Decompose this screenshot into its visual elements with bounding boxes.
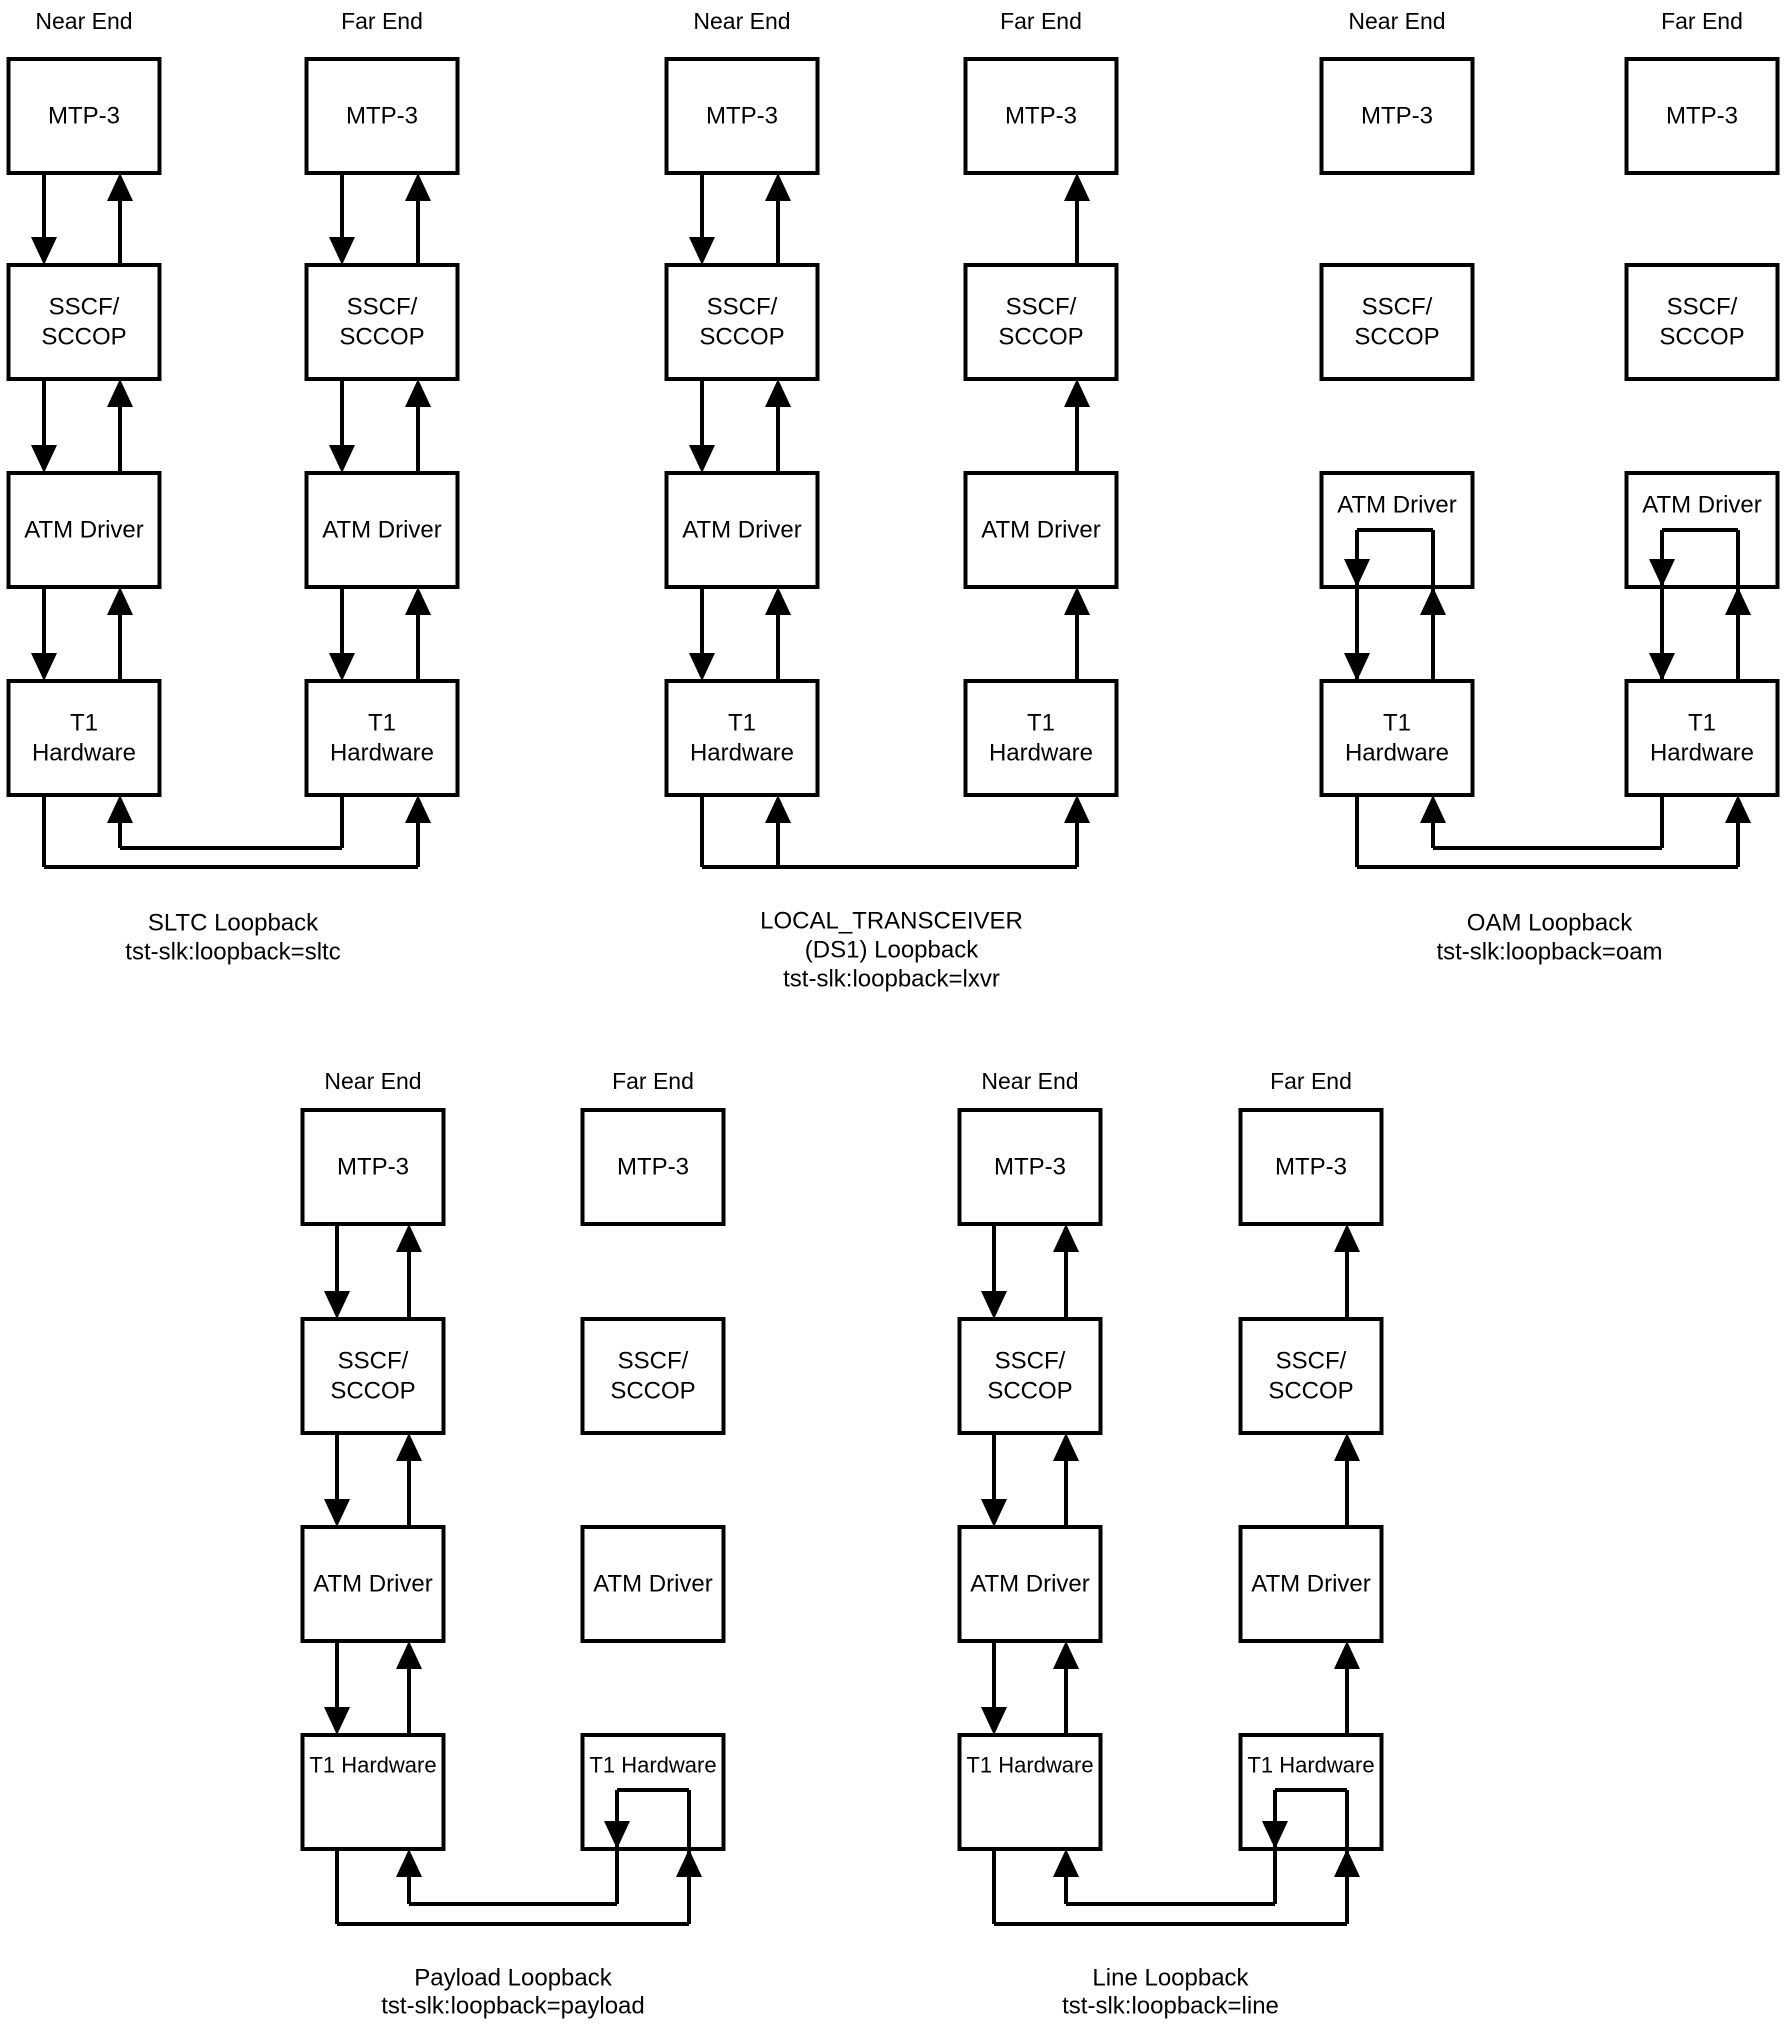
figure-canvas: Near EndFar EndMTP-3SSCF/SCCOPATM Driver… bbox=[0, 0, 1787, 2029]
box-label-mtp3: MTP-3 bbox=[617, 1154, 689, 1181]
arrowhead-up-icon bbox=[396, 1433, 422, 1461]
box-label-mtp3: MTP-3 bbox=[346, 103, 418, 130]
box-label-sccop: SCCOP bbox=[998, 324, 1083, 351]
arrowhead-down-icon bbox=[31, 237, 57, 265]
box-label-sscf: SSCF/ bbox=[707, 294, 778, 321]
box-label-t1: T1 bbox=[1383, 710, 1411, 737]
arrowhead-up-icon bbox=[1420, 587, 1446, 615]
arrowhead-up-icon bbox=[396, 1224, 422, 1252]
arrowhead-down-icon bbox=[329, 653, 355, 681]
arrowhead-up-icon bbox=[765, 795, 791, 823]
box-label-mtp3: MTP-3 bbox=[337, 1154, 409, 1181]
box-t1-hardware bbox=[1627, 681, 1778, 795]
arrowhead-up-icon bbox=[396, 1849, 422, 1877]
arrowhead-up-icon bbox=[676, 1849, 702, 1877]
box-sscf-sccop bbox=[1241, 1319, 1382, 1433]
diagram-oam: Near EndFar EndMTP-3SSCF/SCCOPATM Driver… bbox=[1322, 8, 1778, 966]
diagram-caption: (DS1) Loopback bbox=[805, 937, 979, 964]
box-label-t1: T1 bbox=[1027, 710, 1055, 737]
diagram-sltc: Near EndFar EndMTP-3SSCF/SCCOPATM Driver… bbox=[9, 8, 458, 966]
diagram-caption: tst-slk:loopback=payload bbox=[381, 1993, 644, 2020]
box-label-sccop: SCCOP bbox=[1268, 1378, 1353, 1405]
box-label-t1: T1 bbox=[368, 710, 396, 737]
box-label-sscf: SSCF/ bbox=[618, 1348, 689, 1375]
box-label-sscf: SSCF/ bbox=[347, 294, 418, 321]
arrowhead-up-icon bbox=[1064, 173, 1090, 201]
arrowhead-down-icon bbox=[1344, 653, 1370, 681]
box-label-t1: T1 Hardware bbox=[589, 1753, 716, 1778]
box-label-t1: T1 Hardware bbox=[966, 1753, 1093, 1778]
box-sscf-sccop bbox=[303, 1319, 444, 1433]
box-sscf-sccop bbox=[1322, 265, 1473, 379]
arrowhead-up-icon bbox=[1053, 1433, 1079, 1461]
box-sscf-sccop bbox=[667, 265, 818, 379]
box-label-mtp3: MTP-3 bbox=[706, 103, 778, 130]
arrowhead-down-icon bbox=[324, 1707, 350, 1735]
arrowhead-down-icon bbox=[1649, 653, 1675, 681]
column-label-near-end: Near End bbox=[693, 8, 790, 34]
diagram-caption: OAM Loopback bbox=[1467, 910, 1633, 937]
box-label-sscf: SSCF/ bbox=[338, 1348, 409, 1375]
diagram-payload: Near EndFar EndMTP-3SSCF/SCCOPATM Driver… bbox=[303, 1068, 724, 2020]
arrowhead-up-icon bbox=[107, 795, 133, 823]
column-label-far-end: Far End bbox=[1661, 8, 1743, 34]
arrowhead-up-icon bbox=[405, 587, 431, 615]
box-t1-hardware bbox=[307, 681, 458, 795]
arrowhead-down-icon bbox=[689, 237, 715, 265]
box-label-sccop: SCCOP bbox=[1354, 324, 1439, 351]
arrowhead-down-icon bbox=[689, 653, 715, 681]
box-t1-hardware bbox=[1322, 681, 1473, 795]
box-label-sccop: SCCOP bbox=[339, 324, 424, 351]
column-label-near-end: Near End bbox=[1348, 8, 1445, 34]
box-label-atm-driver: ATM Driver bbox=[1642, 492, 1762, 519]
box-label-mtp3: MTP-3 bbox=[1361, 103, 1433, 130]
arrowhead-up-icon bbox=[1725, 795, 1751, 823]
box-label-sscf: SSCF/ bbox=[49, 294, 120, 321]
box-label-atm-driver: ATM Driver bbox=[1337, 492, 1457, 519]
arrowhead-down-icon bbox=[31, 445, 57, 473]
arrowhead-up-icon bbox=[765, 587, 791, 615]
box-label-t1: Hardware bbox=[1650, 740, 1754, 767]
box-label-atm-driver: ATM Driver bbox=[322, 517, 442, 544]
arrowhead-down-icon bbox=[31, 653, 57, 681]
diagram-caption: Line Loopback bbox=[1092, 1965, 1249, 1992]
box-label-atm-driver: ATM Driver bbox=[313, 1571, 433, 1598]
arrowhead-up-icon bbox=[405, 379, 431, 407]
box-label-sscf: SSCF/ bbox=[1362, 294, 1433, 321]
arrowhead-down-icon bbox=[981, 1707, 1007, 1735]
box-label-sccop: SCCOP bbox=[699, 324, 784, 351]
box-label-mtp3: MTP-3 bbox=[994, 1154, 1066, 1181]
box-sscf-sccop bbox=[307, 265, 458, 379]
arrowhead-up-icon bbox=[1064, 587, 1090, 615]
column-label-far-end: Far End bbox=[341, 8, 423, 34]
box-sscf-sccop bbox=[9, 265, 160, 379]
box-label-sccop: SCCOP bbox=[987, 1378, 1072, 1405]
arrowhead-up-icon bbox=[1064, 379, 1090, 407]
box-label-sccop: SCCOP bbox=[610, 1378, 695, 1405]
arrowhead-up-icon bbox=[765, 379, 791, 407]
diagram-caption: Payload Loopback bbox=[414, 1965, 612, 1992]
arrowhead-up-icon bbox=[1053, 1641, 1079, 1669]
arrowhead-up-icon bbox=[396, 1641, 422, 1669]
column-label-far-end: Far End bbox=[1270, 1068, 1352, 1094]
diagram-caption: LOCAL_TRANSCEIVER bbox=[760, 908, 1023, 935]
box-label-mtp3: MTP-3 bbox=[1666, 103, 1738, 130]
diagram-caption: tst-slk:loopback=line bbox=[1062, 1993, 1279, 2020]
diagram-caption: tst-slk:loopback=sltc bbox=[125, 939, 340, 966]
box-label-atm-driver: ATM Driver bbox=[1251, 1571, 1371, 1598]
arrowhead-down-icon bbox=[981, 1291, 1007, 1319]
box-sscf-sccop bbox=[960, 1319, 1101, 1433]
box-label-t1: Hardware bbox=[989, 740, 1093, 767]
box-label-atm-driver: ATM Driver bbox=[981, 517, 1101, 544]
column-label-near-end: Near End bbox=[35, 8, 132, 34]
diagram-local-transceiver: Near EndFar EndMTP-3SSCF/SCCOPATM Driver… bbox=[667, 8, 1117, 993]
box-sscf-sccop bbox=[583, 1319, 724, 1433]
column-label-near-end: Near End bbox=[324, 1068, 421, 1094]
column-label-far-end: Far End bbox=[1000, 8, 1082, 34]
box-label-t1: Hardware bbox=[690, 740, 794, 767]
column-label-near-end: Near End bbox=[981, 1068, 1078, 1094]
box-label-t1: Hardware bbox=[330, 740, 434, 767]
arrowhead-up-icon bbox=[1420, 795, 1446, 823]
box-label-mtp3: MTP-3 bbox=[48, 103, 120, 130]
box-t1-hardware bbox=[667, 681, 818, 795]
arrowhead-down-icon bbox=[981, 1499, 1007, 1527]
box-label-t1: T1 bbox=[728, 710, 756, 737]
arrowhead-up-icon bbox=[405, 795, 431, 823]
diagram-caption: tst-slk:loopback=lxvr bbox=[783, 966, 1000, 993]
arrowhead-up-icon bbox=[405, 173, 431, 201]
arrowhead-up-icon bbox=[1334, 1641, 1360, 1669]
arrowhead-down-icon bbox=[689, 445, 715, 473]
arrowhead-down-icon bbox=[329, 237, 355, 265]
box-label-t1: Hardware bbox=[1345, 740, 1449, 767]
arrowhead-down-icon bbox=[324, 1499, 350, 1527]
arrowhead-up-icon bbox=[1334, 1849, 1360, 1877]
box-label-atm-driver: ATM Driver bbox=[593, 1571, 713, 1598]
column-label-far-end: Far End bbox=[612, 1068, 694, 1094]
box-label-sscf: SSCF/ bbox=[1667, 294, 1738, 321]
box-label-mtp3: MTP-3 bbox=[1005, 103, 1077, 130]
box-label-atm-driver: ATM Driver bbox=[682, 517, 802, 544]
arrowhead-up-icon bbox=[107, 379, 133, 407]
arrowhead-up-icon bbox=[1334, 1433, 1360, 1461]
arrowhead-down-icon bbox=[329, 445, 355, 473]
arrowhead-down-icon bbox=[324, 1291, 350, 1319]
box-sscf-sccop bbox=[1627, 265, 1778, 379]
loopback-diagrams-figure: Near EndFar EndMTP-3SSCF/SCCOPATM Driver… bbox=[0, 0, 1787, 2029]
diagram-caption: tst-slk:loopback=oam bbox=[1436, 939, 1662, 966]
box-label-sccop: SCCOP bbox=[330, 1378, 415, 1405]
box-label-t1: T1 Hardware bbox=[1247, 1753, 1374, 1778]
box-label-sccop: SCCOP bbox=[41, 324, 126, 351]
box-sscf-sccop bbox=[966, 265, 1117, 379]
box-label-atm-driver: ATM Driver bbox=[970, 1571, 1090, 1598]
box-label-t1: T1 bbox=[70, 710, 98, 737]
box-t1-hardware bbox=[966, 681, 1117, 795]
arrowhead-up-icon bbox=[1053, 1224, 1079, 1252]
box-label-mtp3: MTP-3 bbox=[1275, 1154, 1347, 1181]
box-label-sscf: SSCF/ bbox=[995, 1348, 1066, 1375]
arrowhead-up-icon bbox=[107, 173, 133, 201]
box-label-atm-driver: ATM Driver bbox=[24, 517, 144, 544]
arrowhead-up-icon bbox=[107, 587, 133, 615]
arrowhead-up-icon bbox=[1064, 795, 1090, 823]
arrowhead-up-icon bbox=[765, 173, 791, 201]
diagram-line: Near EndFar EndMTP-3SSCF/SCCOPATM Driver… bbox=[960, 1068, 1382, 2020]
box-label-t1: T1 bbox=[1688, 710, 1716, 737]
arrowhead-up-icon bbox=[1334, 1224, 1360, 1252]
arrowhead-up-icon bbox=[1053, 1849, 1079, 1877]
box-label-sscf: SSCF/ bbox=[1006, 294, 1077, 321]
box-label-sccop: SCCOP bbox=[1659, 324, 1744, 351]
arrowhead-up-icon bbox=[1725, 587, 1751, 615]
box-label-sscf: SSCF/ bbox=[1276, 1348, 1347, 1375]
box-label-t1: Hardware bbox=[32, 740, 136, 767]
box-t1-hardware bbox=[9, 681, 160, 795]
box-label-t1: T1 Hardware bbox=[309, 1753, 436, 1778]
diagram-caption: SLTC Loopback bbox=[148, 910, 319, 937]
